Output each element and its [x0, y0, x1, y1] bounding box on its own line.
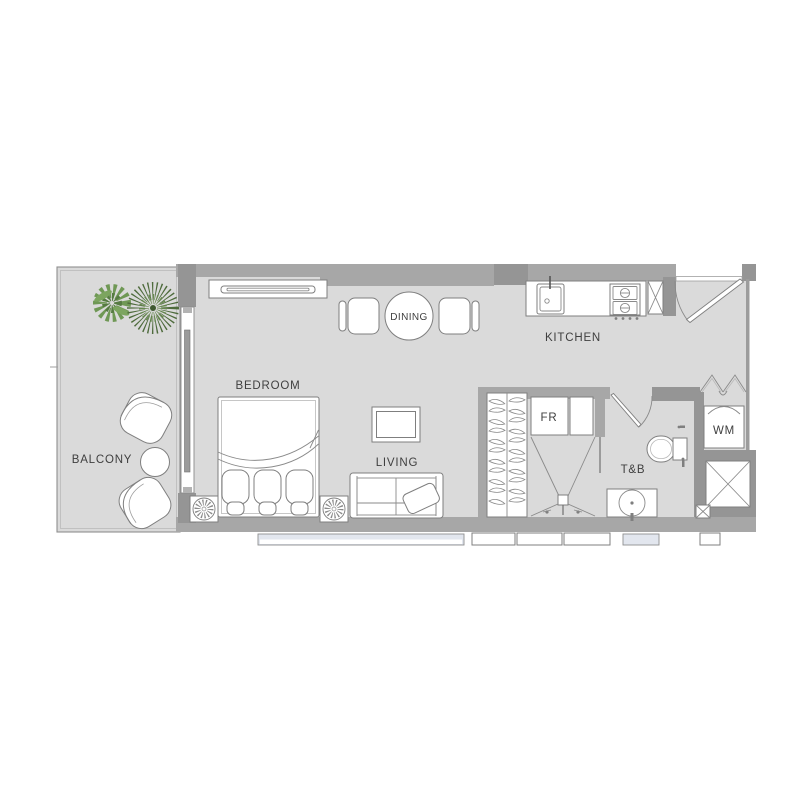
balcony: BALCONY [50, 267, 180, 534]
toilet-icon [647, 436, 687, 462]
dining-chair [439, 298, 470, 334]
floor-plan-canvas: BALCONY BEDROOM [0, 0, 800, 800]
bedside-table [320, 496, 348, 522]
sliding-door-panel [185, 330, 191, 472]
kitchen-wall-block [494, 264, 528, 285]
bed [218, 397, 319, 517]
shower-partition-wall [595, 396, 605, 437]
neighbor-window-band [258, 533, 720, 545]
hall-wall-stub [652, 387, 700, 401]
toilet-bath-label: T&B [621, 464, 646, 476]
coffee-table [372, 407, 420, 442]
floor-plan-drawing: BALCONY BEDROOM [0, 0, 800, 800]
dining-chair [348, 298, 379, 334]
palm-plant-icon [136, 291, 170, 325]
cabinet [570, 397, 593, 435]
vanity-faucet-icon [631, 513, 634, 521]
stove-icon [610, 284, 640, 320]
washing-machine: WM [704, 406, 744, 448]
entry-side-wall [663, 277, 676, 316]
kitchen-label: KITCHEN [545, 332, 601, 344]
bottom-wall [176, 517, 756, 532]
top-wall-thick [320, 264, 494, 286]
dining: DINING [339, 292, 479, 340]
fridge-nook: FR [531, 397, 593, 435]
ceiling-lamp-icon [323, 498, 345, 520]
sofa [350, 473, 443, 518]
closet-left-wall [478, 387, 487, 517]
top-wall [176, 264, 320, 277]
tb-right-wall [694, 392, 704, 452]
door-threshold [676, 277, 742, 282]
dining-label: DINING [390, 312, 427, 323]
kitchen-shaft-icon [648, 281, 663, 314]
balcony-divider-top [178, 264, 196, 307]
shower-drain-icon [558, 495, 568, 505]
dining-chair-back [472, 301, 479, 331]
living-label: LIVING [376, 457, 419, 469]
entry-corner-wall [742, 264, 756, 281]
washing-machine-label: WM [713, 425, 735, 437]
sliding-door [181, 307, 194, 493]
bed-pillows [222, 470, 313, 515]
service-shaft [694, 450, 756, 518]
ceiling-lamp-icon [193, 498, 215, 520]
bedroom-label: BEDROOM [235, 380, 300, 392]
vanity [607, 489, 657, 521]
dining-chair-back [339, 301, 346, 331]
sliding-door-cap [183, 487, 192, 493]
balcony-label: BALCONY [72, 454, 133, 466]
bedside-table [190, 496, 218, 522]
sliding-door-cap [183, 307, 192, 313]
closet [487, 393, 527, 517]
fridge-label: FR [541, 412, 558, 424]
shower-glass [599, 437, 601, 473]
console-table [209, 280, 327, 298]
balcony-table [141, 448, 170, 477]
